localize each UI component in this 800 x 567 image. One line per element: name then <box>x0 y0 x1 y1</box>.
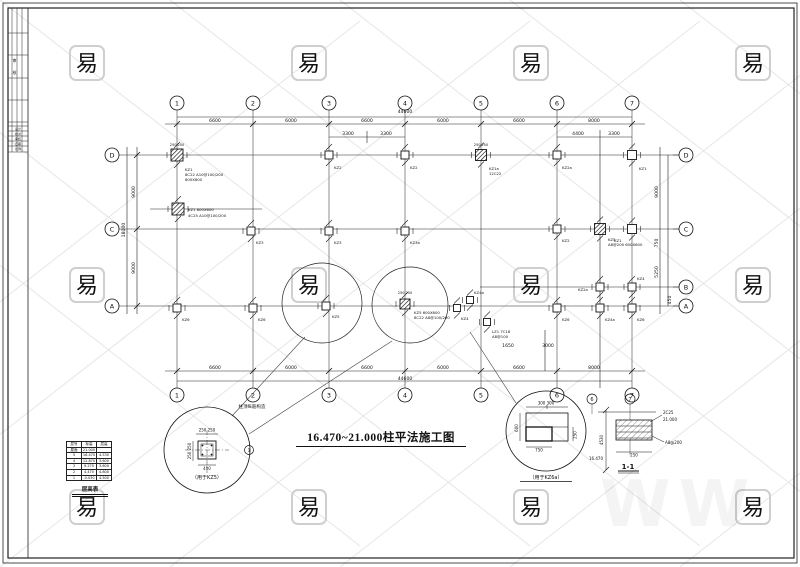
watermark-logo-char: 易 <box>742 52 764 77</box>
column-label: KZ5 <box>332 314 340 319</box>
dim-text: 750 <box>654 239 660 248</box>
dim-text: 6600 <box>209 365 221 371</box>
detail-a-dim-bottom: 400 <box>203 466 211 471</box>
floor-table-row: 516.4704.530 <box>67 453 112 459</box>
axis-bubble-label: 5 <box>479 391 483 399</box>
section-ann-2: A8@200 <box>665 440 682 445</box>
drawing-title: 16.470~21.000柱平法施工图 <box>296 429 466 447</box>
axis-bubble-label: C <box>684 225 689 233</box>
column-label: KZ2 <box>562 238 570 243</box>
dim-text: 8000 <box>588 365 600 371</box>
floor-table-cell: 1 <box>67 475 82 481</box>
dim-text: 3300 <box>380 131 392 137</box>
column-tick <box>175 196 181 202</box>
column-label: 4C25 A10@100/200 <box>188 213 227 218</box>
column-label: KZ6 <box>182 317 190 322</box>
floor-table-cell: 16.470 <box>82 453 97 459</box>
ghost-watermark-text: WW <box>600 468 757 542</box>
column-label: 8C22 A8@100/200 <box>414 315 450 320</box>
watermark-logo-char: 易 <box>76 274 98 299</box>
axis-bubble-label: 2 <box>251 391 255 399</box>
dim-text: 44600 <box>398 109 413 115</box>
dim-text: 6000 <box>285 118 297 124</box>
column-marker <box>596 304 604 312</box>
column-marker <box>476 150 487 161</box>
column-marker <box>401 151 409 159</box>
column-marker <box>596 283 604 291</box>
column-label: KZ2a <box>578 287 588 292</box>
rebar-dot <box>202 445 204 447</box>
leader <box>652 436 664 442</box>
axis-bubble-label: D <box>109 151 114 159</box>
dim-text: 450 <box>667 296 673 305</box>
leader-line <box>249 341 392 434</box>
watermark-logo-char: 易 <box>298 274 320 299</box>
dim-text: 250 250 <box>474 143 488 147</box>
detail-b-dim-top: 300 300 <box>538 401 555 406</box>
column-marker <box>628 304 636 312</box>
column-label: KZ2 <box>334 165 342 170</box>
column-marker <box>171 149 183 161</box>
floor-table-header-row: 层号标高层高 <box>67 442 112 448</box>
detail-b-caption: （用于KZ6a） <box>530 475 563 481</box>
watermark-logo-char: 易 <box>298 52 320 77</box>
rebar-dot <box>202 454 204 456</box>
dim-text: 6600 <box>513 365 525 371</box>
section-elev-top: 21.000 <box>663 417 677 422</box>
titleblock-row-label: 校对 <box>15 131 21 136</box>
watermark-logo-char: 易 <box>742 274 764 299</box>
watermark-logo-char: 易 <box>520 52 542 77</box>
axis-bubble-label: 4 <box>403 391 407 399</box>
detail-b-dim-right: 250 <box>573 431 578 439</box>
floor-elevation-table: 层号标高层高屋面21.000516.4704.530412.8703.60039… <box>66 441 112 481</box>
section-dim: 4530 <box>599 434 604 445</box>
column-label: KZ3 <box>334 240 342 245</box>
column-marker <box>249 304 257 312</box>
axis-bubble-label: 6 <box>590 397 593 403</box>
watermark-logo-char: 易 <box>520 496 542 521</box>
axis-bubble-label: 2 <box>251 99 255 107</box>
floor-table-cell: 12.870 <box>82 458 97 464</box>
floor-table-cell: -0.030 <box>82 475 97 481</box>
column-marker <box>325 227 333 235</box>
dim-text: 3300 <box>608 131 620 137</box>
axis-bubble-label: D <box>683 151 688 159</box>
floor-table-row: 39.2703.600 <box>67 464 112 470</box>
column-label: A8@100 <box>492 334 509 339</box>
dim-text: 18000 <box>121 223 127 238</box>
dim-text: 6600 <box>361 365 373 371</box>
column-tick <box>467 305 473 311</box>
column-label: KZ6 <box>258 317 266 322</box>
dim-text: 6600 <box>209 118 221 124</box>
column-tick <box>454 298 460 304</box>
titleblock-char-2: 核 <box>13 69 17 75</box>
column-label: KZ1 <box>639 166 647 171</box>
beam-section <box>616 420 652 440</box>
watermark-diagonal <box>680 0 800 546</box>
column-label: KZ2a <box>562 165 572 170</box>
column-label: KZ3a <box>410 240 420 245</box>
column-marker <box>325 151 333 159</box>
column-label: KZ2 <box>410 165 418 170</box>
floor-table-caption: 层高表 <box>72 485 108 497</box>
detail-a-tag: 1 <box>248 448 251 454</box>
watermark-logo-char: 易 <box>76 52 98 77</box>
column-marker <box>173 304 181 312</box>
column-marker <box>628 283 636 291</box>
dim-text: 5250 <box>654 266 660 278</box>
axis-bubble-label: 3 <box>327 99 331 107</box>
section-elev-left: 16.470 <box>589 456 603 461</box>
column-marker <box>595 224 606 235</box>
detail-a-dim-left: 250 250 <box>187 442 192 459</box>
column-marker <box>401 227 409 235</box>
column-label: KZ4 <box>637 276 645 281</box>
column-marker <box>322 302 330 310</box>
axis-bubble-label: 7 <box>630 99 634 107</box>
column-label: KZ6 <box>637 317 645 322</box>
floor-table-cell: 21.000 <box>82 447 97 453</box>
column-marker <box>247 227 255 235</box>
column-marker <box>553 304 561 312</box>
column-label: KZ4 <box>461 316 469 321</box>
dim-text: 250 250 <box>398 291 412 295</box>
rebar-dot <box>211 454 213 456</box>
titleblock-row-label: 设计 <box>15 126 21 131</box>
dim-text: 1650 <box>502 343 514 349</box>
dim-text: 3300 <box>342 131 354 137</box>
column-marker <box>400 299 410 309</box>
axis-bubble-label: B <box>684 283 688 291</box>
axis-bubble-label: 3 <box>327 391 331 399</box>
titleblock-rows: 设计校对审核日期比例 <box>15 126 21 151</box>
leader <box>650 415 662 422</box>
column-label: KZ6 <box>562 317 570 322</box>
dim-text: 6000 <box>285 365 297 371</box>
core-outline <box>526 427 552 441</box>
section-dim-bottom: 250 <box>630 453 638 458</box>
axis-bubble-label: 1 <box>175 391 179 399</box>
floor-table-row: 412.8703.600 <box>67 458 112 464</box>
titleblock-row-label: 日期 <box>15 141 21 146</box>
column-plan: 11223344556677DCADCBA4460066006000660060… <box>105 96 693 434</box>
column-tick <box>467 290 473 296</box>
axis-bubble-label: 7 <box>628 397 631 403</box>
detail-a-dim-top: 250 250 <box>199 428 216 433</box>
column-label: KZ1 <box>614 238 622 243</box>
dim-text: 9000 <box>131 186 137 198</box>
dim-text: 9000 <box>131 262 137 274</box>
rebar-dot <box>211 445 213 447</box>
dim-text: 3000 <box>542 343 554 349</box>
watermark-logo-char: 易 <box>298 496 320 521</box>
column-marker <box>172 203 184 215</box>
section-1-1: 6 7 4530 2C25 A8@200 21.000 16.470 250 1… <box>587 394 682 473</box>
floor-table-row: 1-0.0304.500 <box>67 475 112 481</box>
column-label: 600X600 <box>185 177 203 182</box>
column-marker <box>484 319 491 326</box>
axis-bubble-label: 5 <box>479 99 483 107</box>
titleblock-char-1: 审 <box>13 57 17 63</box>
detail-a-caption: （用于KZ5） <box>192 475 222 481</box>
column-marker <box>454 305 461 312</box>
column-marker <box>628 151 637 160</box>
floor-table-row: 24.4704.800 <box>67 469 112 475</box>
dim-text: 4400 <box>572 131 584 137</box>
axis-bubble-label: 4 <box>403 99 407 107</box>
watermark-diagonal <box>340 0 800 546</box>
drawing-sheet: 易易易易易易易易易易易易 审 核 <box>0 0 800 567</box>
floor-table-cell: 4.500 <box>97 475 112 481</box>
column-tick <box>484 312 490 318</box>
column-marker <box>467 297 474 304</box>
column-label: KZ3 <box>256 240 264 245</box>
column-marker <box>628 225 637 234</box>
watermark-logo-char: 易 <box>76 496 98 521</box>
dim-text: 6600 <box>513 118 525 124</box>
column-marker <box>553 225 561 233</box>
detail-b-dim-left: 600 <box>514 424 519 432</box>
column-label: KZ1 600X600 <box>188 207 214 212</box>
watermark-diagonal <box>170 0 800 546</box>
dim-text: 8000 <box>588 118 600 124</box>
titleblock-row-label: 比例 <box>15 146 21 151</box>
watermark-logo-char: 易 <box>520 274 542 299</box>
detail-a-note: 柱顶纵筋构造 <box>239 403 266 410</box>
column-label: KZ4a <box>474 290 484 295</box>
axis-bubble-label: A <box>110 302 115 310</box>
axis-bubble-label: A <box>684 302 689 310</box>
dim-text: 6000 <box>437 118 449 124</box>
dim-text: 9000 <box>654 186 660 198</box>
axis-bubble-label: 6 <box>555 99 559 107</box>
detail-b-dim-bottom: 750 <box>535 448 543 453</box>
section-ann-1: 2C25 <box>663 410 674 415</box>
dim-text: 6600 <box>361 118 373 124</box>
column-marker <box>553 151 561 159</box>
titleblock-row-label: 审核 <box>15 136 21 141</box>
detail-a: 250 250 250 250 400 （用于KZ5） 1 柱顶纵筋构造 <box>164 403 266 493</box>
column-tick <box>484 327 490 333</box>
axis-bubble-label: C <box>110 225 115 233</box>
column-label: KZ4a <box>605 317 615 322</box>
column-tick <box>175 216 181 222</box>
axis-bubble-label: 1 <box>175 99 179 107</box>
dim-text: 6000 <box>437 365 449 371</box>
dim-text: 44600 <box>398 376 413 382</box>
column-tick <box>454 313 460 319</box>
column-label: 12C22 <box>489 171 502 176</box>
